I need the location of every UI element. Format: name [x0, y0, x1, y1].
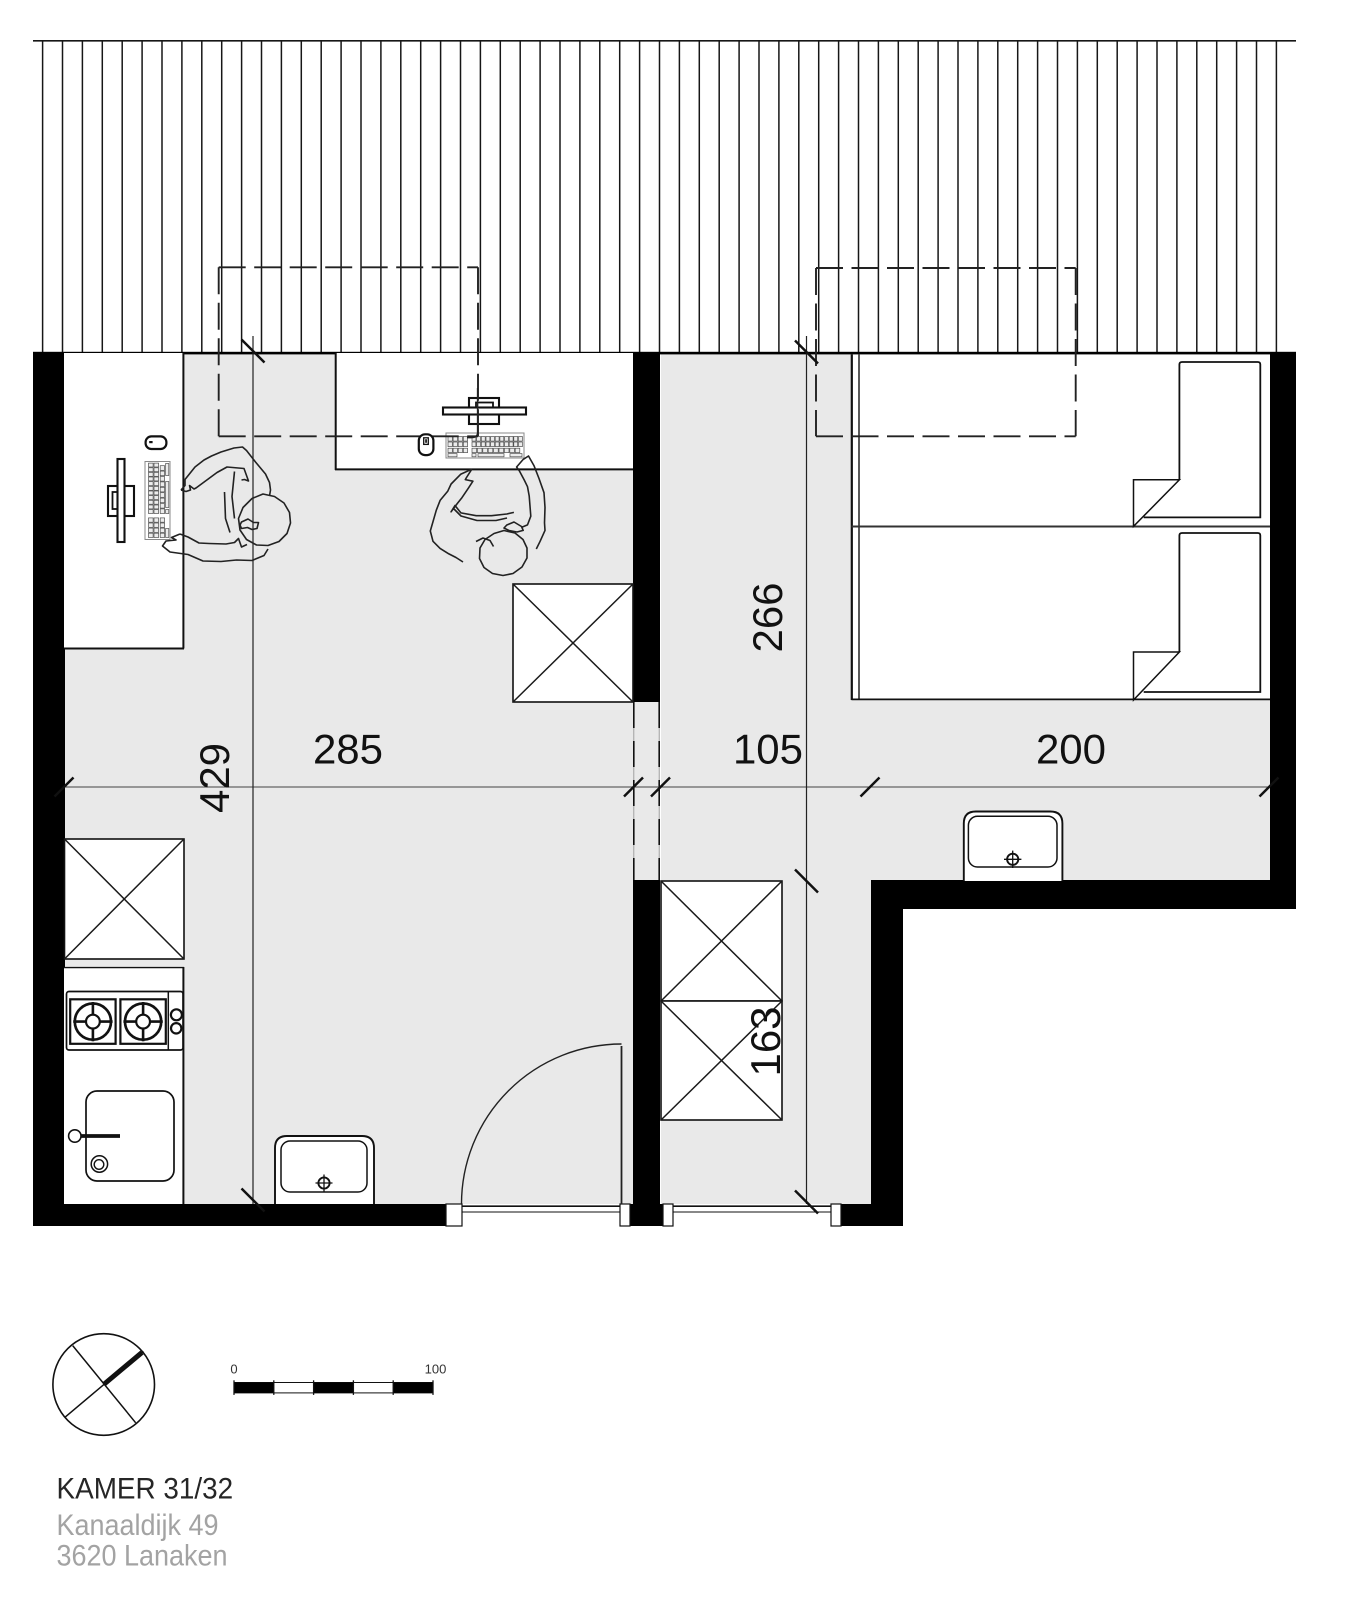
- svg-text:KAMER 31/32: KAMER 31/32: [57, 1473, 234, 1506]
- svg-text:0: 0: [230, 1362, 237, 1377]
- svg-text:3620 Lanaken: 3620 Lanaken: [57, 1539, 228, 1573]
- svg-text:163: 163: [742, 1006, 789, 1076]
- svg-text:Kanaaldijk 49: Kanaaldijk 49: [57, 1509, 219, 1543]
- svg-text:285: 285: [313, 726, 383, 773]
- svg-text:429: 429: [191, 743, 238, 813]
- svg-text:200: 200: [1036, 726, 1106, 773]
- svg-text:266: 266: [744, 582, 791, 652]
- svg-text:105: 105: [733, 726, 803, 773]
- svg-text:100: 100: [425, 1362, 447, 1377]
